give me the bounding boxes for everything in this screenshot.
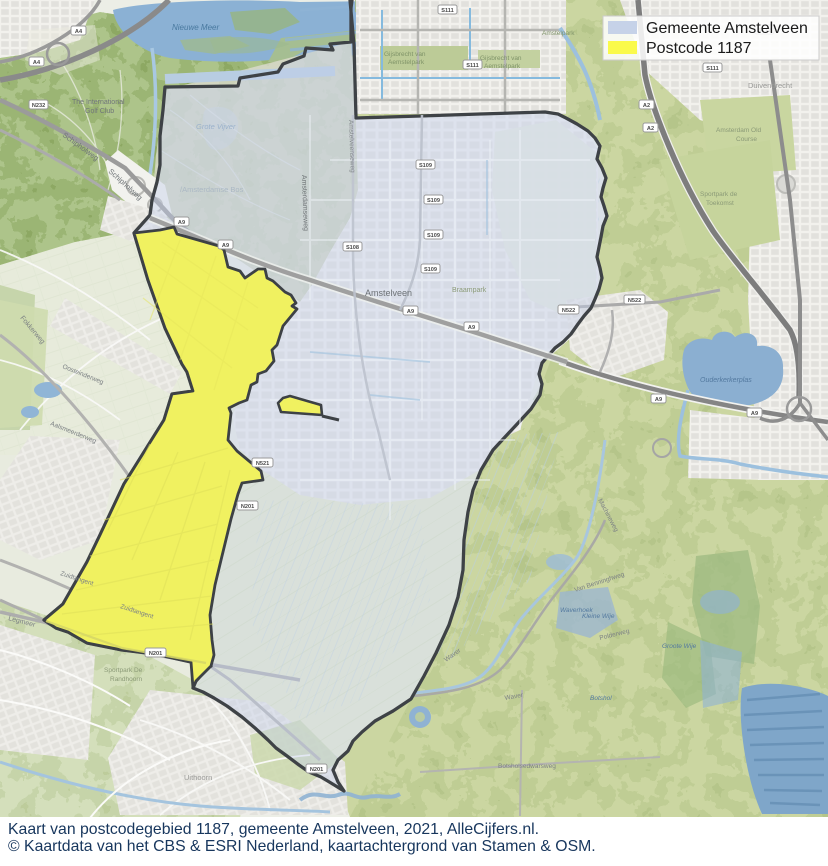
svg-text:Golf Club: Golf Club xyxy=(85,108,114,115)
svg-text:N522: N522 xyxy=(562,308,575,314)
svg-text:A9: A9 xyxy=(407,309,414,315)
svg-text:Nieuwe Meer: Nieuwe Meer xyxy=(172,23,219,32)
svg-text:Botsholsedwarsweg: Botsholsedwarsweg xyxy=(498,763,556,770)
svg-text:Gijsbrecht van: Gijsbrecht van xyxy=(384,51,426,58)
svg-text:A9: A9 xyxy=(468,325,475,331)
svg-text:A2: A2 xyxy=(643,103,650,109)
svg-text:Aemstelpark: Aemstelpark xyxy=(388,59,425,66)
svg-text:S111: S111 xyxy=(706,66,718,72)
svg-text:A9: A9 xyxy=(222,243,229,249)
svg-text:Duivendrecht: Duivendrecht xyxy=(748,81,793,90)
svg-text:S109: S109 xyxy=(424,267,437,273)
svg-text:S109: S109 xyxy=(419,163,432,169)
svg-text:A9: A9 xyxy=(655,397,662,403)
svg-text:© Kaartdata van het CBS & ESRI: © Kaartdata van het CBS & ESRI Nederland… xyxy=(8,838,596,855)
svg-text:The International: The International xyxy=(72,99,125,106)
svg-text:A4: A4 xyxy=(75,29,83,35)
svg-text:S111: S111 xyxy=(441,8,453,14)
svg-text:Gijsbrecht van: Gijsbrecht van xyxy=(480,55,522,62)
svg-text:S109: S109 xyxy=(427,198,440,204)
svg-text:N201: N201 xyxy=(310,767,323,773)
svg-text:A9: A9 xyxy=(751,411,758,417)
svg-text:N201: N201 xyxy=(241,504,254,510)
svg-text:Uithoorn: Uithoorn xyxy=(184,773,212,782)
svg-text:N521: N521 xyxy=(256,461,269,467)
svg-text:Ouderkerkerplas: Ouderkerkerplas xyxy=(700,377,752,384)
svg-text:Waverhoek: Waverhoek xyxy=(560,607,594,614)
svg-text:Kleine Wije: Kleine Wije xyxy=(582,613,615,620)
svg-text:Toekomst: Toekomst xyxy=(706,200,734,207)
svg-text:Kaart van postcodegebied 1187,: Kaart van postcodegebied 1187, gemeente … xyxy=(8,821,539,838)
svg-text:S111: S111 xyxy=(466,63,478,69)
svg-text:Sportpark de: Sportpark de xyxy=(700,191,738,198)
svg-text:S108: S108 xyxy=(346,245,359,251)
svg-text:Course: Course xyxy=(736,136,757,143)
svg-text:Gemeente Amstelveen: Gemeente Amstelveen xyxy=(646,20,808,37)
svg-text:A9: A9 xyxy=(178,220,185,226)
svg-text:Postcode 1187: Postcode 1187 xyxy=(646,40,752,57)
svg-text:Sportpark De: Sportpark De xyxy=(104,667,143,674)
svg-text:Groote Wije: Groote Wije xyxy=(662,643,697,650)
svg-text:Amstelpark: Amstelpark xyxy=(542,30,575,37)
svg-text:Amstelveen: Amstelveen xyxy=(365,288,412,298)
svg-text:Randhoorn: Randhoorn xyxy=(110,676,143,683)
svg-text:N232: N232 xyxy=(32,103,45,109)
svg-text:Braampark: Braampark xyxy=(452,287,487,294)
svg-text:Amsterdam Old: Amsterdam Old xyxy=(716,127,762,134)
svg-text:N201: N201 xyxy=(149,651,162,657)
svg-text:N522: N522 xyxy=(628,298,641,304)
svg-text:A2: A2 xyxy=(647,126,654,132)
svg-text:Aemstelpark: Aemstelpark xyxy=(484,63,521,70)
svg-text:S109: S109 xyxy=(427,233,440,239)
svg-text:Botshol: Botshol xyxy=(590,695,612,702)
svg-text:A4: A4 xyxy=(33,60,41,66)
